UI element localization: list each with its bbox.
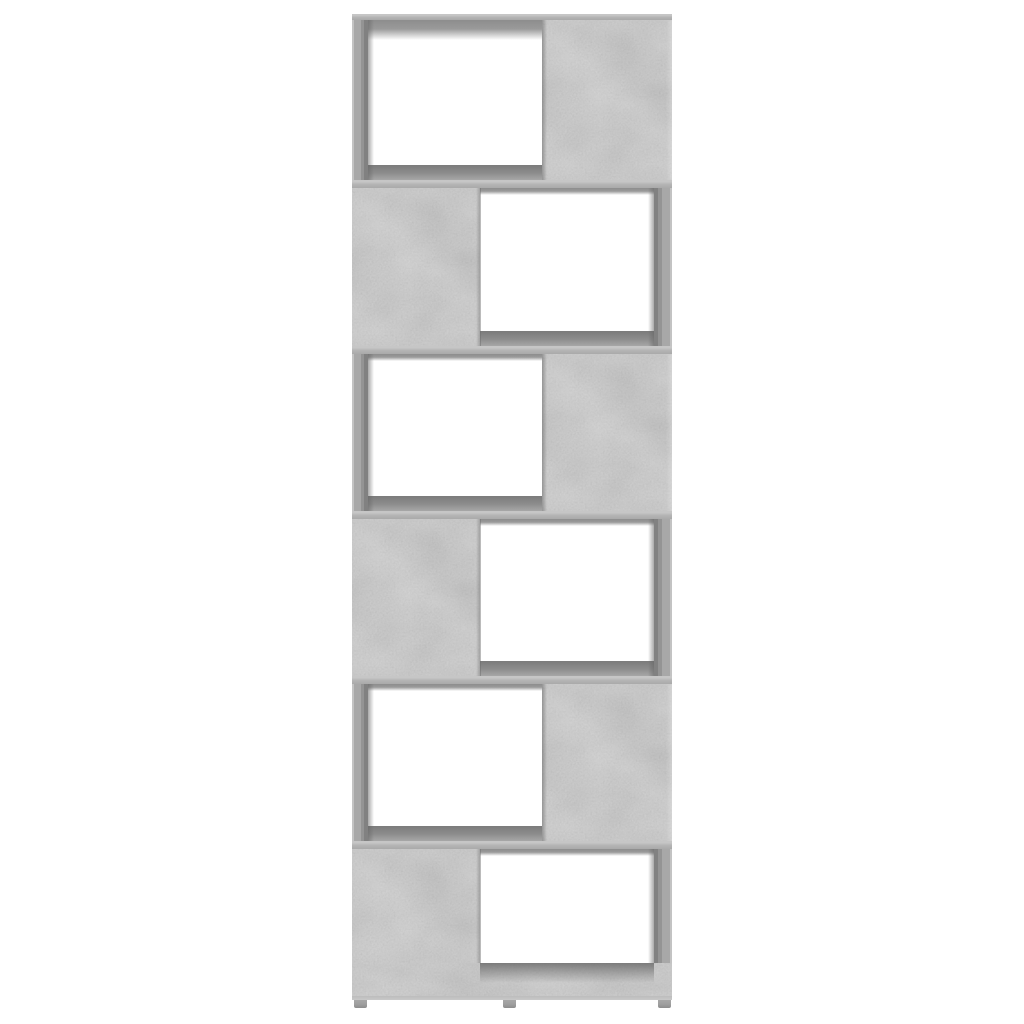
tier-content (352, 849, 672, 963)
shelf-opening (480, 519, 654, 676)
side-panel-edge (352, 354, 368, 511)
opening-bottom-shadow (368, 165, 542, 180)
concrete-texture (352, 188, 480, 346)
opening-top-shadow (480, 849, 654, 856)
back-panel (352, 188, 480, 346)
tier-content (352, 519, 672, 676)
side-panel-edge (352, 684, 368, 841)
opening-side-shadow (368, 684, 374, 841)
back-panel (352, 519, 480, 676)
back-panel (542, 684, 672, 841)
side-panel-edge (654, 519, 672, 676)
partition-edge (542, 354, 547, 511)
concrete-texture (542, 354, 672, 511)
shelf-edge (352, 346, 672, 354)
partition-edge (476, 519, 481, 676)
partition-edge (476, 849, 481, 963)
opening-bottom-shadow (480, 331, 654, 346)
foot-1 (354, 1000, 367, 1008)
concrete-texture (542, 20, 672, 180)
opening-top-shadow (368, 20, 542, 40)
base-top-shadow (480, 963, 654, 983)
shelf-opening (480, 849, 654, 963)
tier-1 (352, 14, 672, 180)
shelf-edge (352, 676, 672, 684)
opening-bottom-shadow (368, 496, 542, 511)
tier-content (352, 20, 672, 180)
back-panel (542, 354, 672, 511)
partition-edge (476, 188, 481, 346)
tier-5 (352, 676, 672, 841)
partition-edge (542, 20, 547, 180)
side-panel-edge (352, 20, 368, 180)
opening-side-shadow (368, 354, 374, 511)
opening-top-shadow (480, 188, 654, 195)
tier-3 (352, 346, 672, 511)
tier-4 (352, 511, 672, 676)
shelf-edge (352, 180, 672, 188)
base-board (352, 963, 672, 1000)
side-panel-edge (654, 188, 672, 346)
bookcase (352, 14, 672, 1008)
foot-2 (503, 1000, 516, 1008)
opening-bottom-shadow (368, 826, 542, 841)
tier-6 (352, 841, 672, 1000)
tier-content (352, 684, 672, 841)
back-panel (352, 849, 480, 963)
tier-content (352, 354, 672, 511)
opening-bottom-shadow (480, 661, 654, 676)
shelf-opening (480, 188, 654, 346)
back-panel (542, 20, 672, 180)
opening-top-shadow (480, 519, 654, 526)
product-image (0, 0, 1024, 1024)
shelf-opening (368, 684, 542, 841)
shelf-edge (352, 841, 672, 849)
shelf-opening (368, 354, 542, 511)
opening-top-shadow (368, 354, 542, 361)
concrete-texture (542, 684, 672, 841)
opening-top-shadow (368, 684, 542, 691)
side-panel-edge (654, 849, 672, 963)
shelf-edge (352, 511, 672, 519)
concrete-texture (352, 519, 480, 676)
opening-side-shadow (368, 20, 374, 180)
partition-edge (542, 684, 547, 841)
concrete-texture (352, 849, 480, 963)
tier-content (352, 188, 672, 346)
shelf-opening (368, 20, 542, 180)
tier-2 (352, 180, 672, 346)
foot-3 (658, 1000, 671, 1008)
